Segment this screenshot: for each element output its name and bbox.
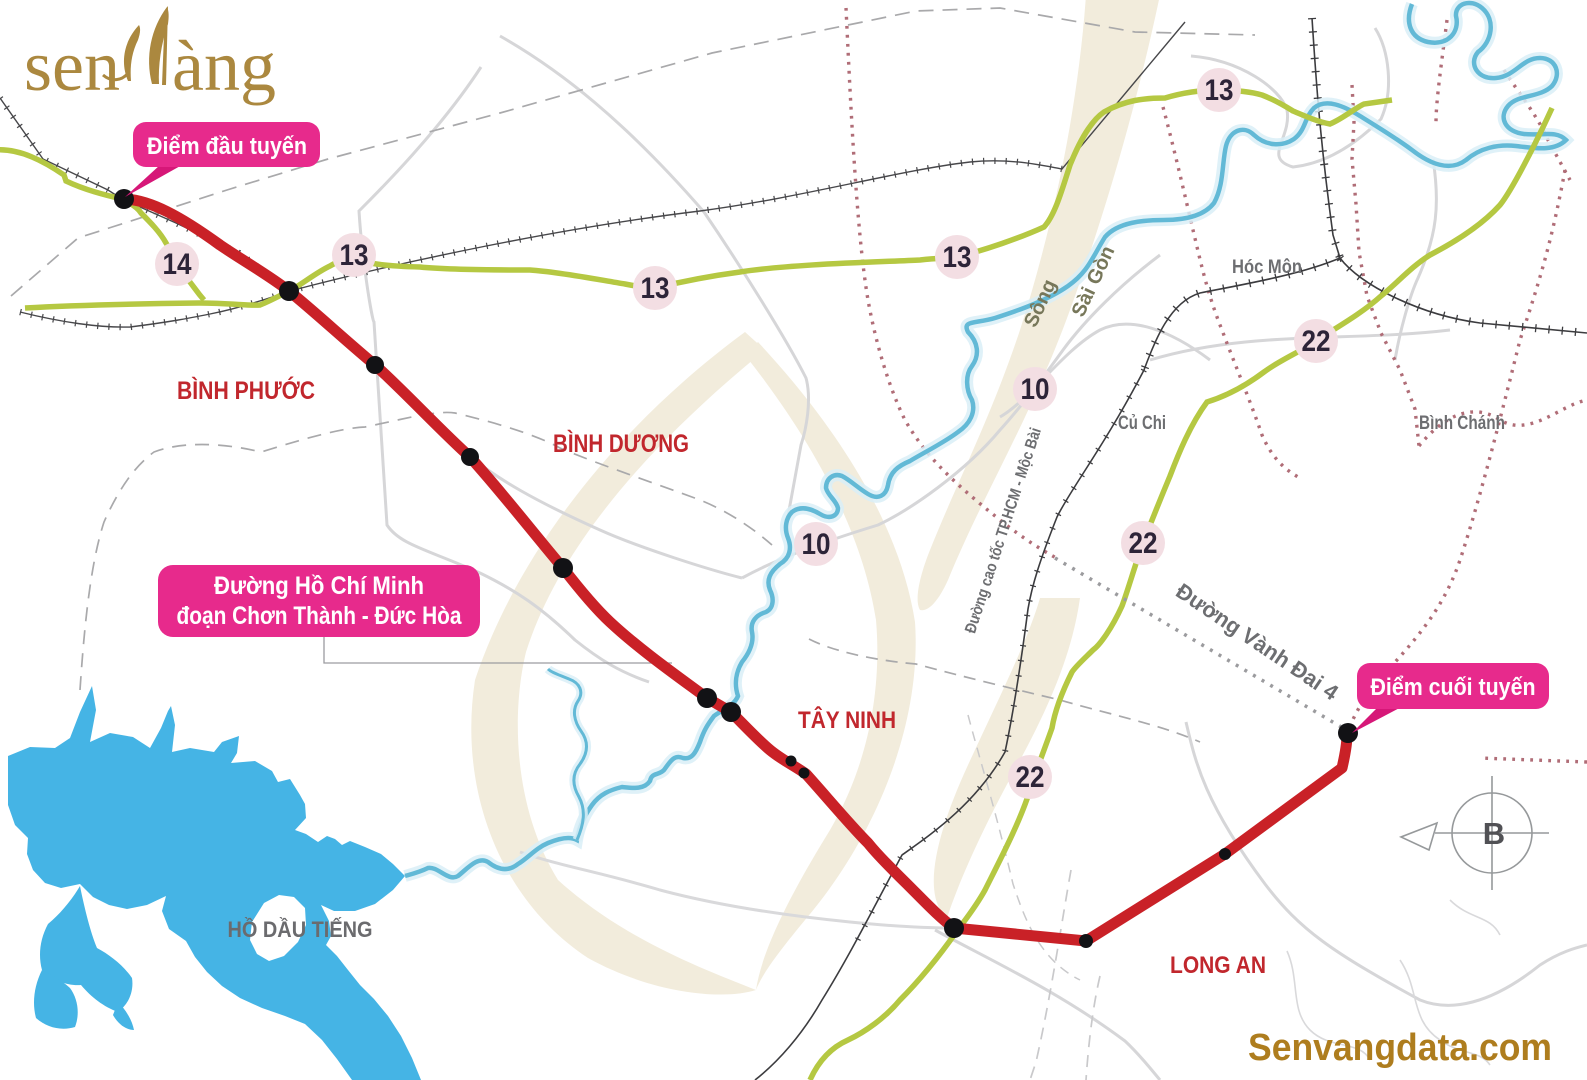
svg-text:22: 22 bbox=[1016, 761, 1045, 794]
svg-text:LONG AN: LONG AN bbox=[1170, 952, 1266, 979]
svg-text:22: 22 bbox=[1129, 527, 1158, 560]
svg-text:Hóc Môn: Hóc Môn bbox=[1232, 257, 1302, 278]
svg-text:BÌNH PHƯỚC: BÌNH PHƯỚC bbox=[177, 375, 315, 405]
svg-text:22: 22 bbox=[1302, 325, 1331, 358]
svg-text:10: 10 bbox=[802, 528, 831, 561]
svg-text:13: 13 bbox=[340, 239, 369, 272]
svg-text:Điểm cuối tuyến: Điểm cuối tuyến bbox=[1371, 674, 1536, 701]
svg-text:Bình Chánh: Bình Chánh bbox=[1419, 413, 1505, 434]
svg-text:Điểm đầu tuyến: Điểm đầu tuyến bbox=[147, 133, 307, 160]
svg-text:13: 13 bbox=[943, 241, 972, 274]
svg-text:HỒ DẦU TIẾNG: HỒ DẦU TIẾNG bbox=[228, 917, 373, 942]
svg-text:Củ Chi: Củ Chi bbox=[1118, 413, 1166, 434]
svg-text:14: 14 bbox=[163, 248, 192, 281]
svg-text:B: B bbox=[1483, 816, 1505, 851]
svg-text:13: 13 bbox=[641, 272, 670, 305]
svg-text:BÌNH DƯƠNG: BÌNH DƯƠNG bbox=[553, 429, 689, 458]
svg-text:Đường Hồ Chí Minh: Đường Hồ Chí Minh bbox=[214, 572, 424, 600]
svg-text:sen: sen bbox=[24, 26, 120, 106]
svg-text:10: 10 bbox=[1021, 373, 1050, 406]
svg-text:Senvangdata.com: Senvangdata.com bbox=[1248, 1027, 1552, 1069]
svg-text:đoạn Chơn Thành - Đức Hòa: đoạn Chơn Thành - Đức Hòa bbox=[177, 602, 463, 630]
svg-text:àng: àng bbox=[172, 26, 276, 106]
svg-text:TÂY NINH: TÂY NINH bbox=[798, 706, 896, 734]
svg-text:13: 13 bbox=[1205, 74, 1234, 107]
